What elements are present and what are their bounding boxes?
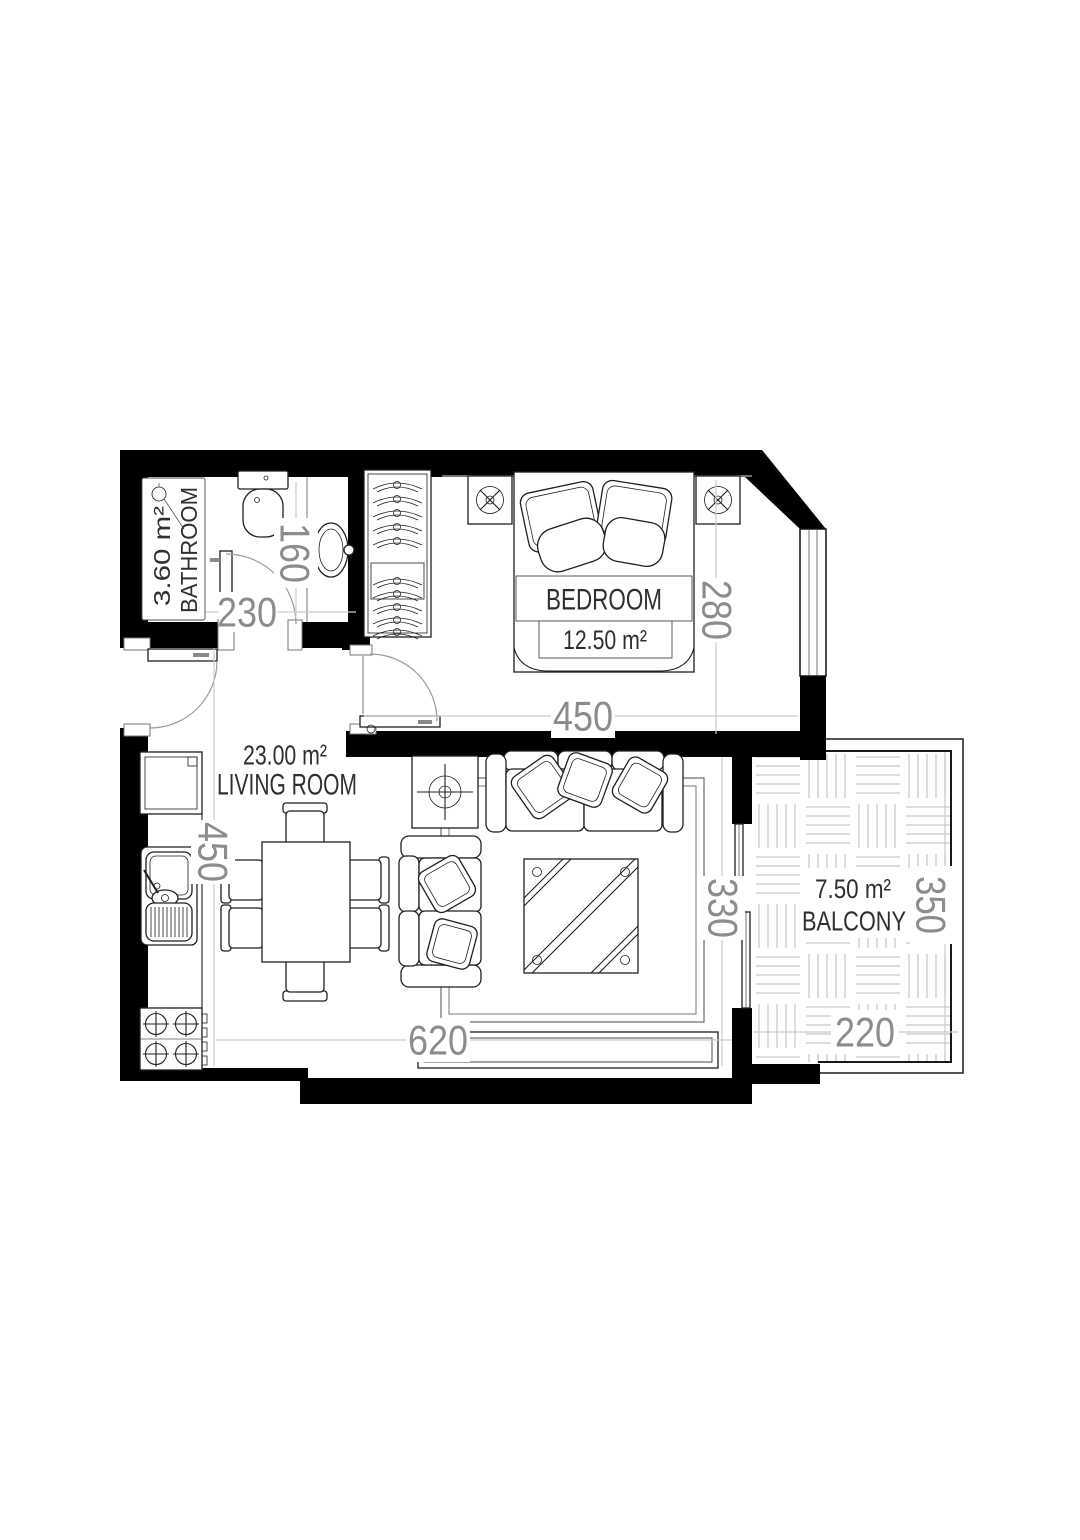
side-table-lamp-icon [412,756,478,828]
wall-balcony-bottom-stub [733,1064,820,1084]
dining-chair [283,803,327,845]
dim-living-depth: 450 [190,822,237,882]
wall-bathroom-bottom-right [296,622,364,648]
bedroom-label: BEDROOM 12.50 m² [516,576,692,658]
dining-chair [347,857,389,903]
floor-plan-page: 3.60 m² BATHROOM BEDROOM 12.50 m² 23.00 … [0,0,1080,1540]
dim-bathroom-depth: 160 [272,523,319,583]
balcony-label: 7.50 m² BALCONY [800,868,910,938]
door-swing [150,661,217,728]
dim-bedroom-width: 450 [553,693,613,740]
kitchen-sink-icon [141,847,197,945]
nightstand-icon [468,476,512,524]
door-swing [370,654,437,721]
floor-plan-drawing: 3.60 m² BATHROOM BEDROOM 12.50 m² 23.00 … [0,0,1080,1540]
coffee-table-icon [524,859,638,973]
wall-bathroom-right [348,450,364,622]
door-handle [418,720,432,724]
dining-chair [347,905,389,951]
dim-living-balcony-wall: 330 [700,878,747,938]
bedroom-door [350,645,440,734]
dining-set [221,803,389,1001]
door-frame [124,724,150,736]
wall-balcony-left-upper [732,757,752,824]
dining-chair [221,905,263,951]
entrance-door [124,638,217,736]
sofa-icon [399,836,481,987]
dim-bedroom-depth: 280 [694,580,741,640]
nightstand-icon [696,476,740,524]
dining-chair [283,958,327,1001]
door-frame [288,620,302,650]
fridge-icon [140,752,202,814]
balcony-area: 7.50 m² [815,874,891,904]
door-frame [350,645,372,655]
bedroom-area: 12.50 m² [563,625,647,655]
door-handle [210,558,220,562]
bedroom-window [800,529,826,676]
dim-living-width: 620 [408,1017,468,1064]
bathroom-area: 3.60 m² [149,506,175,606]
door-handle [193,653,209,657]
wall-bottom-main [300,1078,752,1104]
dim-bathroom-width: 230 [217,589,277,636]
dining-table-icon [262,842,350,962]
living-room-label: 23.00 m² LIVING ROOM [217,740,357,802]
bathroom-label: 3.60 m² BATHROOM [142,478,205,620]
living-room-name: LIVING ROOM [217,769,357,802]
living-room-area: 23.00 m² [243,740,327,771]
bathroom-name: BATHROOM [176,487,202,613]
balcony-name: BALCONY [802,906,906,937]
wardrobe-icon [364,470,431,639]
dim-balcony-depth: 350 [908,876,955,934]
door-frame [124,638,150,650]
bedroom-name: BEDROOM [546,584,662,617]
stove-icon [140,1008,207,1070]
sofa-icon [486,751,683,832]
dim-balcony-width: 220 [835,1009,895,1056]
